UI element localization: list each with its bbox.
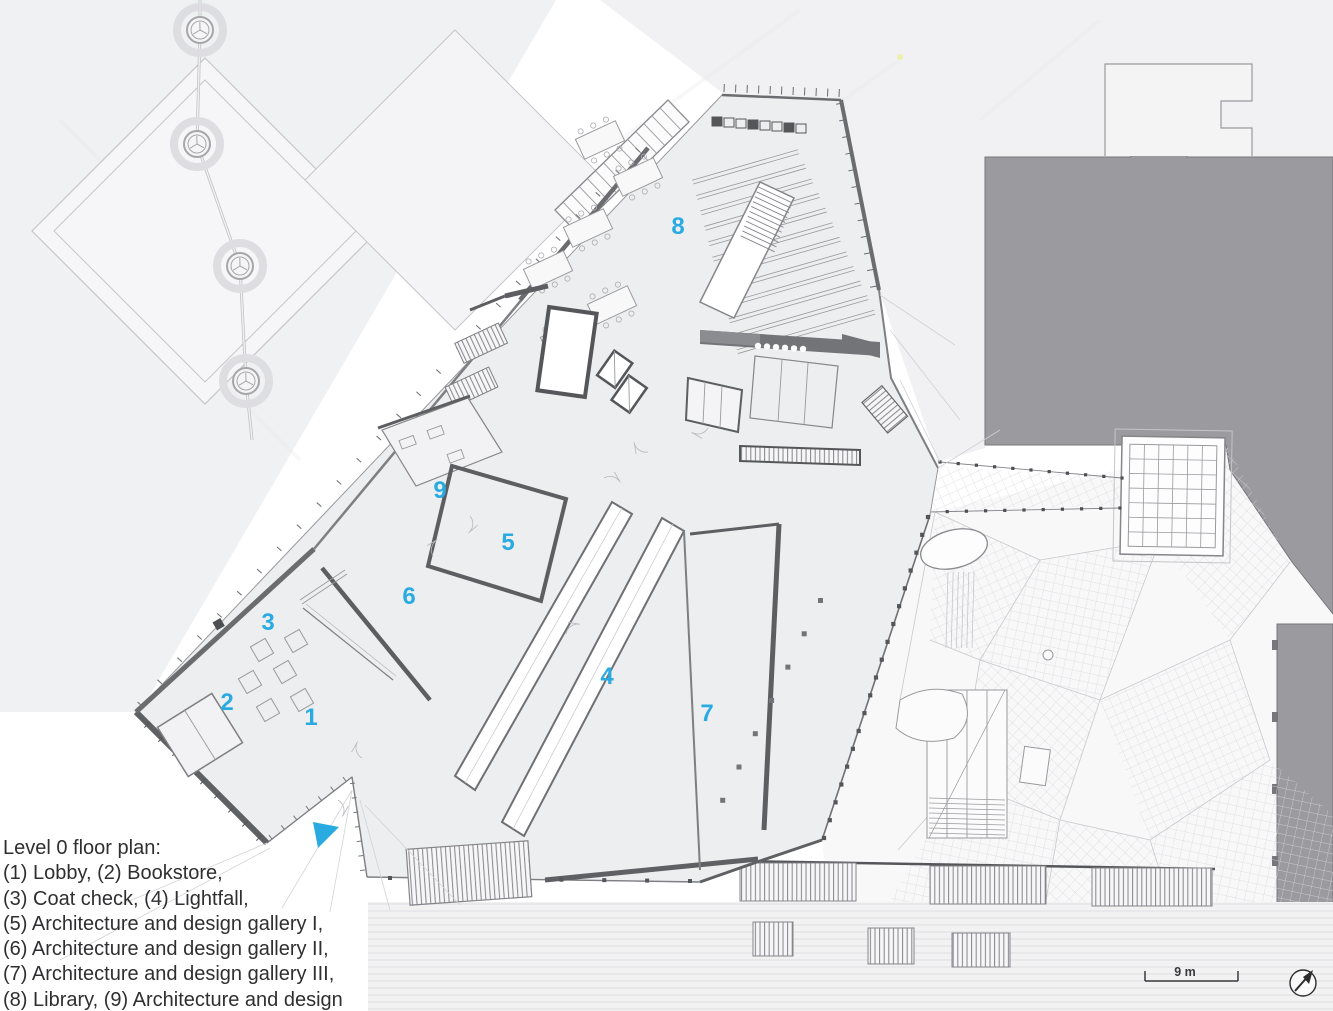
legend: Level 0 floor plan: (1) Lobby, (2) Books… bbox=[3, 836, 433, 1011]
plan-label-7: 7 bbox=[700, 700, 713, 727]
plan-label-2: 2 bbox=[220, 689, 233, 716]
legend-line: (1) Lobby, (2) Bookstore, bbox=[3, 861, 433, 886]
plan-label-9: 9 bbox=[433, 477, 446, 504]
plan-label-1: 1 bbox=[304, 704, 317, 731]
legend-line: (7) Architecture and design gallery III, bbox=[3, 962, 433, 987]
legend-line: (8) Library, (9) Architecture and design bbox=[3, 988, 433, 1011]
plan-label-8: 8 bbox=[671, 213, 684, 240]
scale-bar-label: 9 m bbox=[1174, 965, 1196, 979]
paving-stripes bbox=[368, 902, 1333, 1011]
legend-line: (6) Architecture and design gallery II, bbox=[3, 937, 433, 962]
north-compass-icon bbox=[1290, 970, 1316, 996]
main-shaft bbox=[537, 307, 596, 397]
legend-line: (5) Architecture and design gallery I, bbox=[3, 912, 433, 937]
plan-label-4: 4 bbox=[600, 663, 614, 690]
plan-label-3: 3 bbox=[261, 609, 274, 636]
plan-label-5: 5 bbox=[501, 529, 514, 556]
yellow-dot bbox=[897, 54, 903, 60]
floor-plan-page: 1 2 3 4 5 6 7 8 9 9 m Level 0 floor plan… bbox=[0, 0, 1333, 1011]
skylight-grid bbox=[1113, 429, 1232, 563]
legend-line: (3) Coat check, (4) Lightfall, bbox=[3, 887, 433, 912]
legend-title: Level 0 floor plan: bbox=[3, 836, 433, 861]
plan-label-6: 6 bbox=[402, 583, 415, 610]
escalator bbox=[740, 446, 860, 465]
